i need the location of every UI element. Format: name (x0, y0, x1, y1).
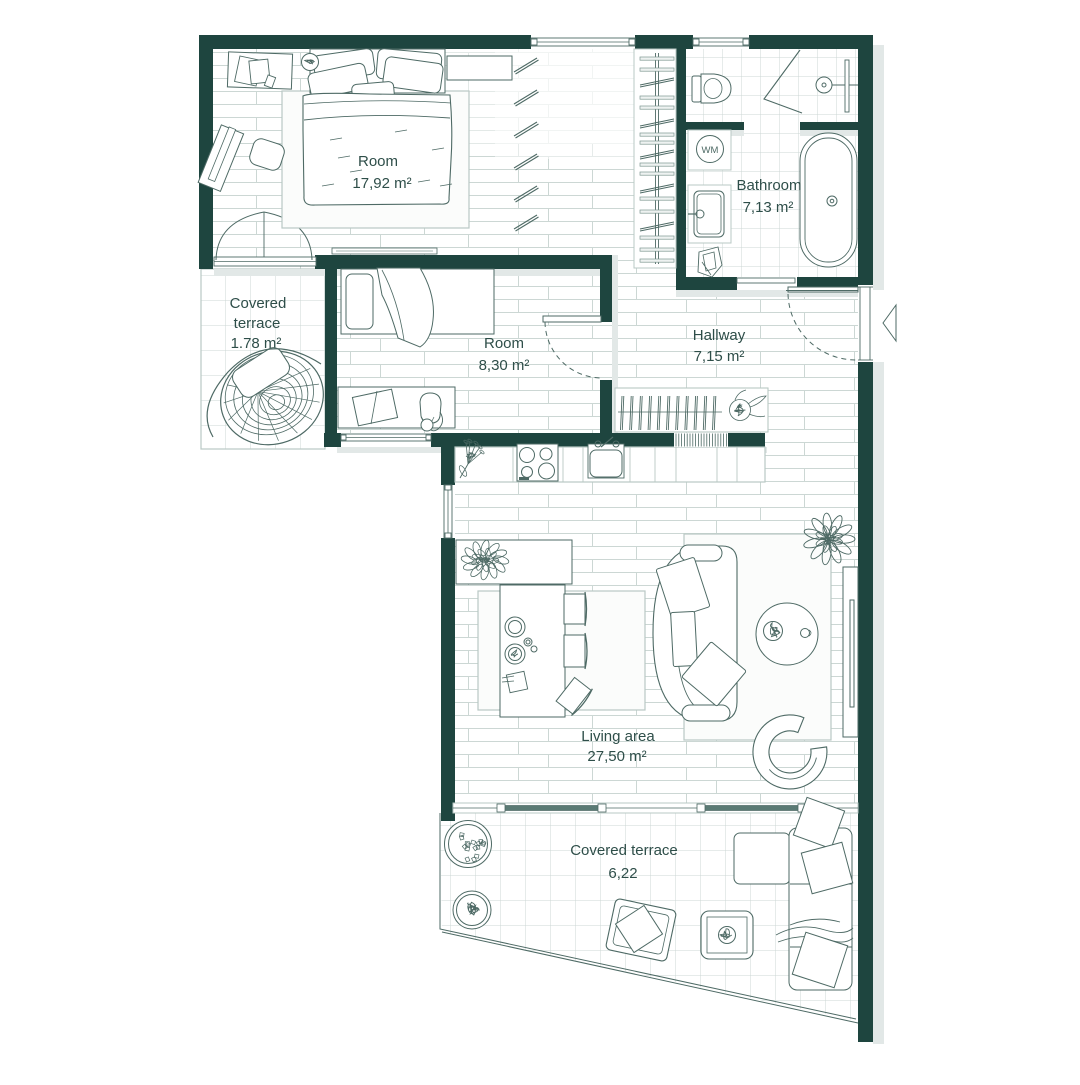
svg-text:Hallway: Hallway (693, 327, 746, 344)
svg-text:WM: WM (702, 145, 719, 156)
svg-text:6,22: 6,22 (608, 865, 637, 882)
svg-text:Room: Room (484, 335, 524, 352)
svg-text:Living area: Living area (581, 728, 655, 745)
svg-text:Room: Room (358, 153, 398, 170)
svg-text:17,92 m²: 17,92 m² (352, 175, 411, 192)
svg-text:7,15 m²: 7,15 m² (694, 348, 745, 365)
svg-text:7,13 m²: 7,13 m² (743, 199, 794, 216)
svg-text:Bathroom: Bathroom (736, 177, 801, 194)
svg-text:8,30 m²: 8,30 m² (479, 357, 530, 374)
svg-text:Covered terrace: Covered terrace (570, 842, 678, 859)
svg-text:Covered: Covered (230, 295, 287, 312)
svg-text:terrace: terrace (234, 315, 281, 332)
svg-text:27,50 m²: 27,50 m² (587, 748, 646, 765)
